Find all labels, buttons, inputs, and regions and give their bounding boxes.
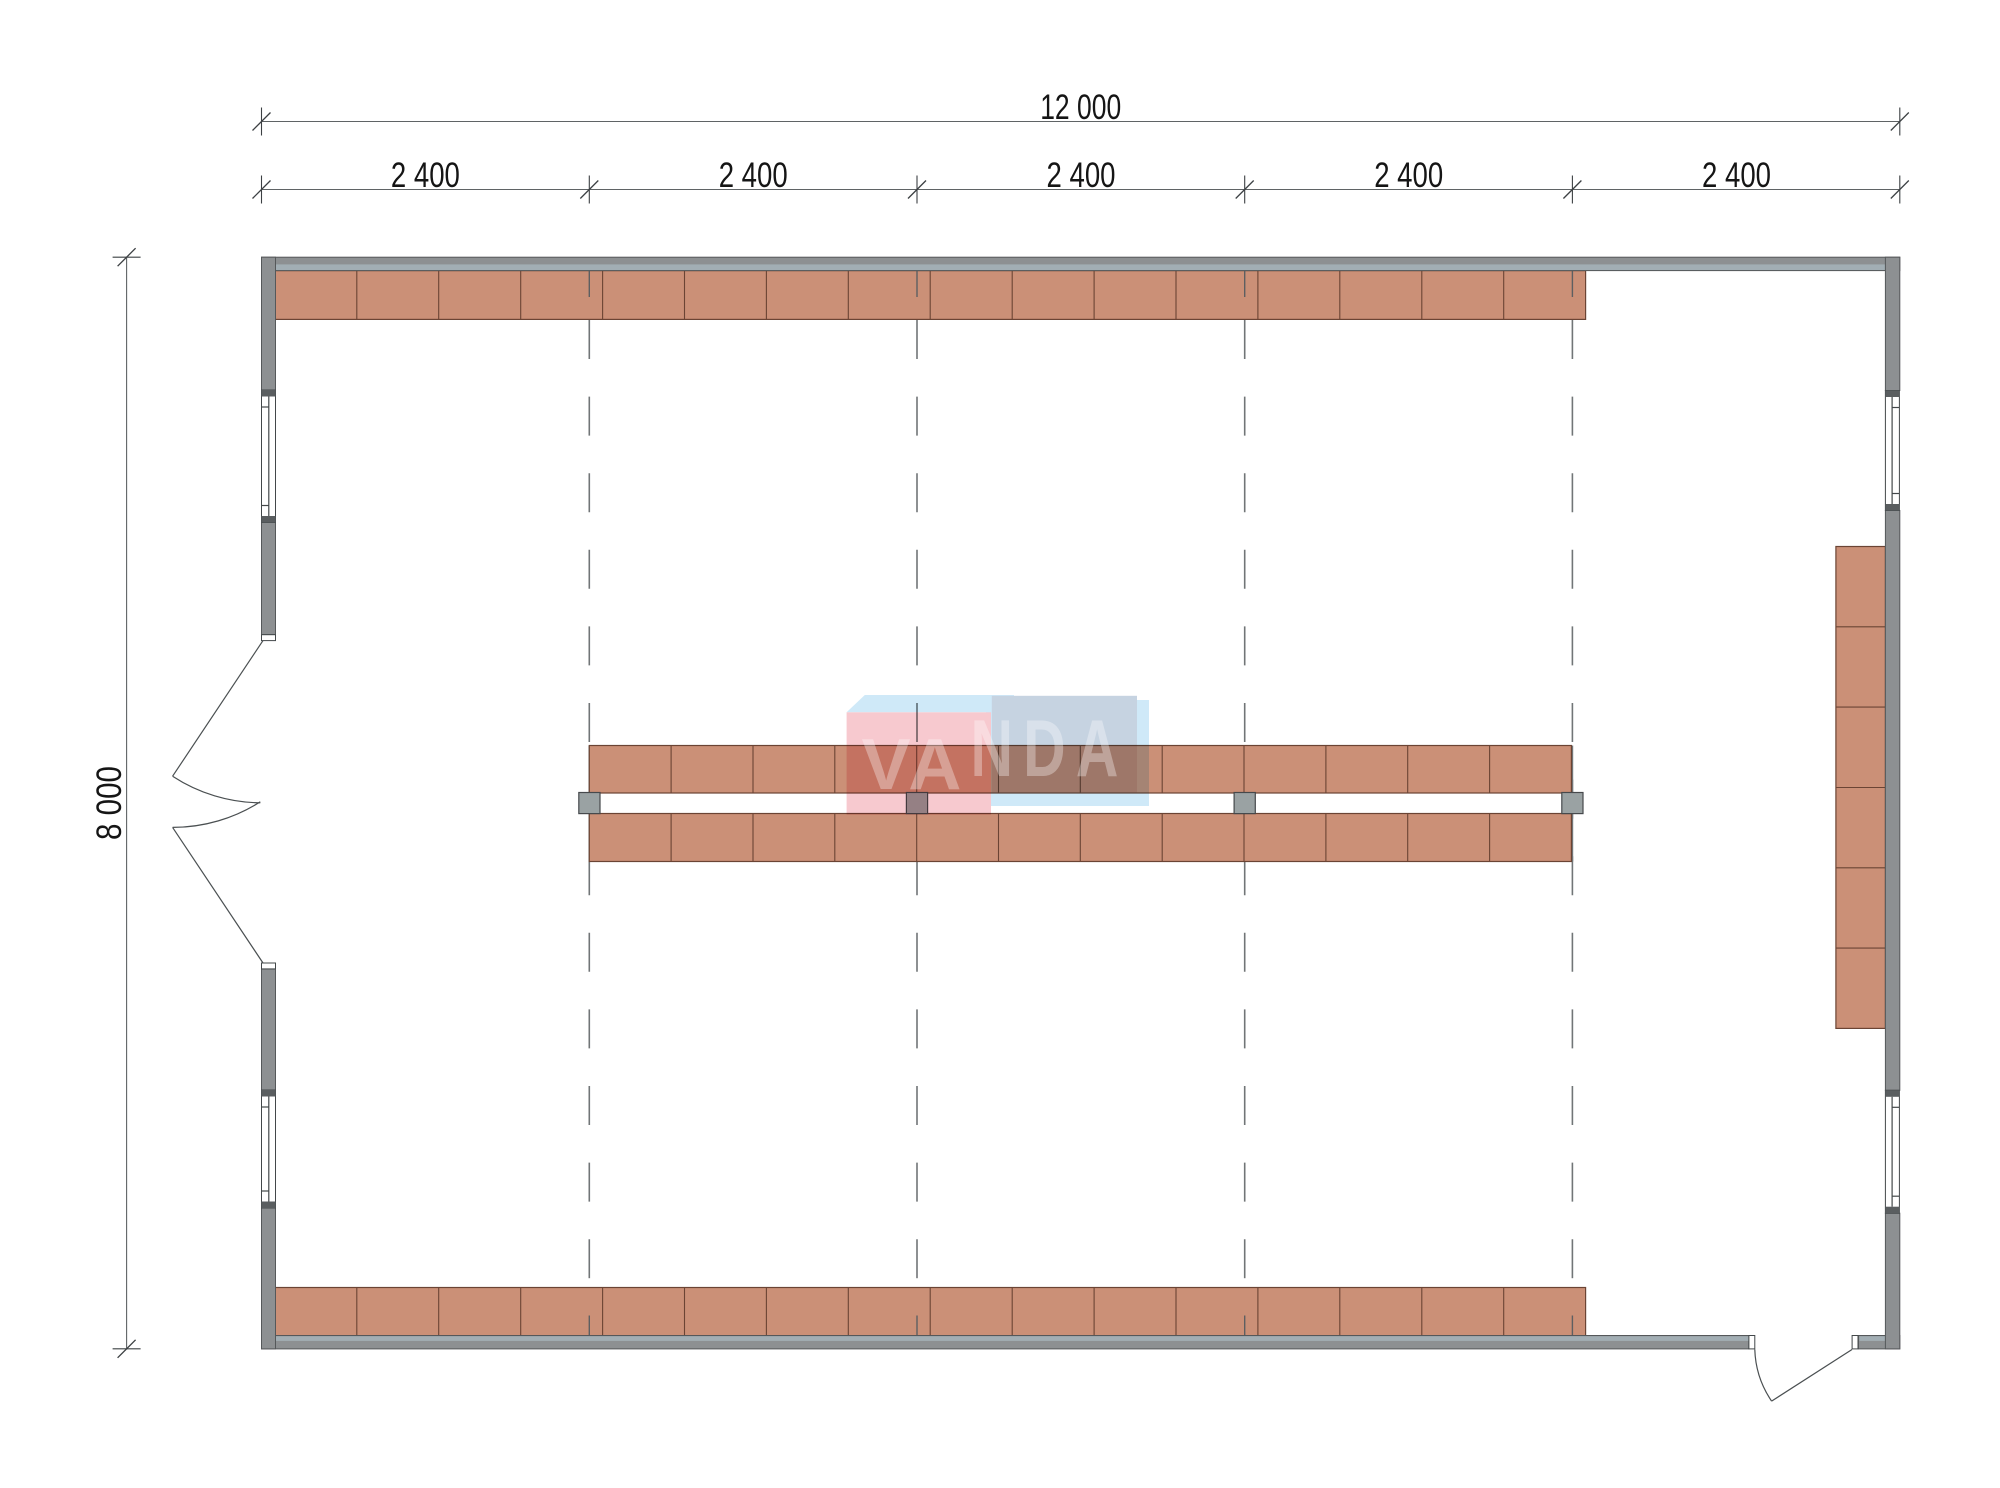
svg-text:12 000: 12 000: [1040, 88, 1121, 127]
svg-text:8 000: 8 000: [90, 766, 129, 840]
svg-text:NDA: NDA: [971, 704, 1129, 794]
svg-text:2 400: 2 400: [1047, 156, 1116, 195]
svg-text:2 400: 2 400: [719, 156, 788, 195]
svg-text:2 400: 2 400: [391, 156, 460, 195]
svg-text:VA: VA: [862, 725, 965, 805]
svg-text:2 400: 2 400: [1702, 156, 1771, 195]
svg-text:2 400: 2 400: [1374, 156, 1443, 195]
